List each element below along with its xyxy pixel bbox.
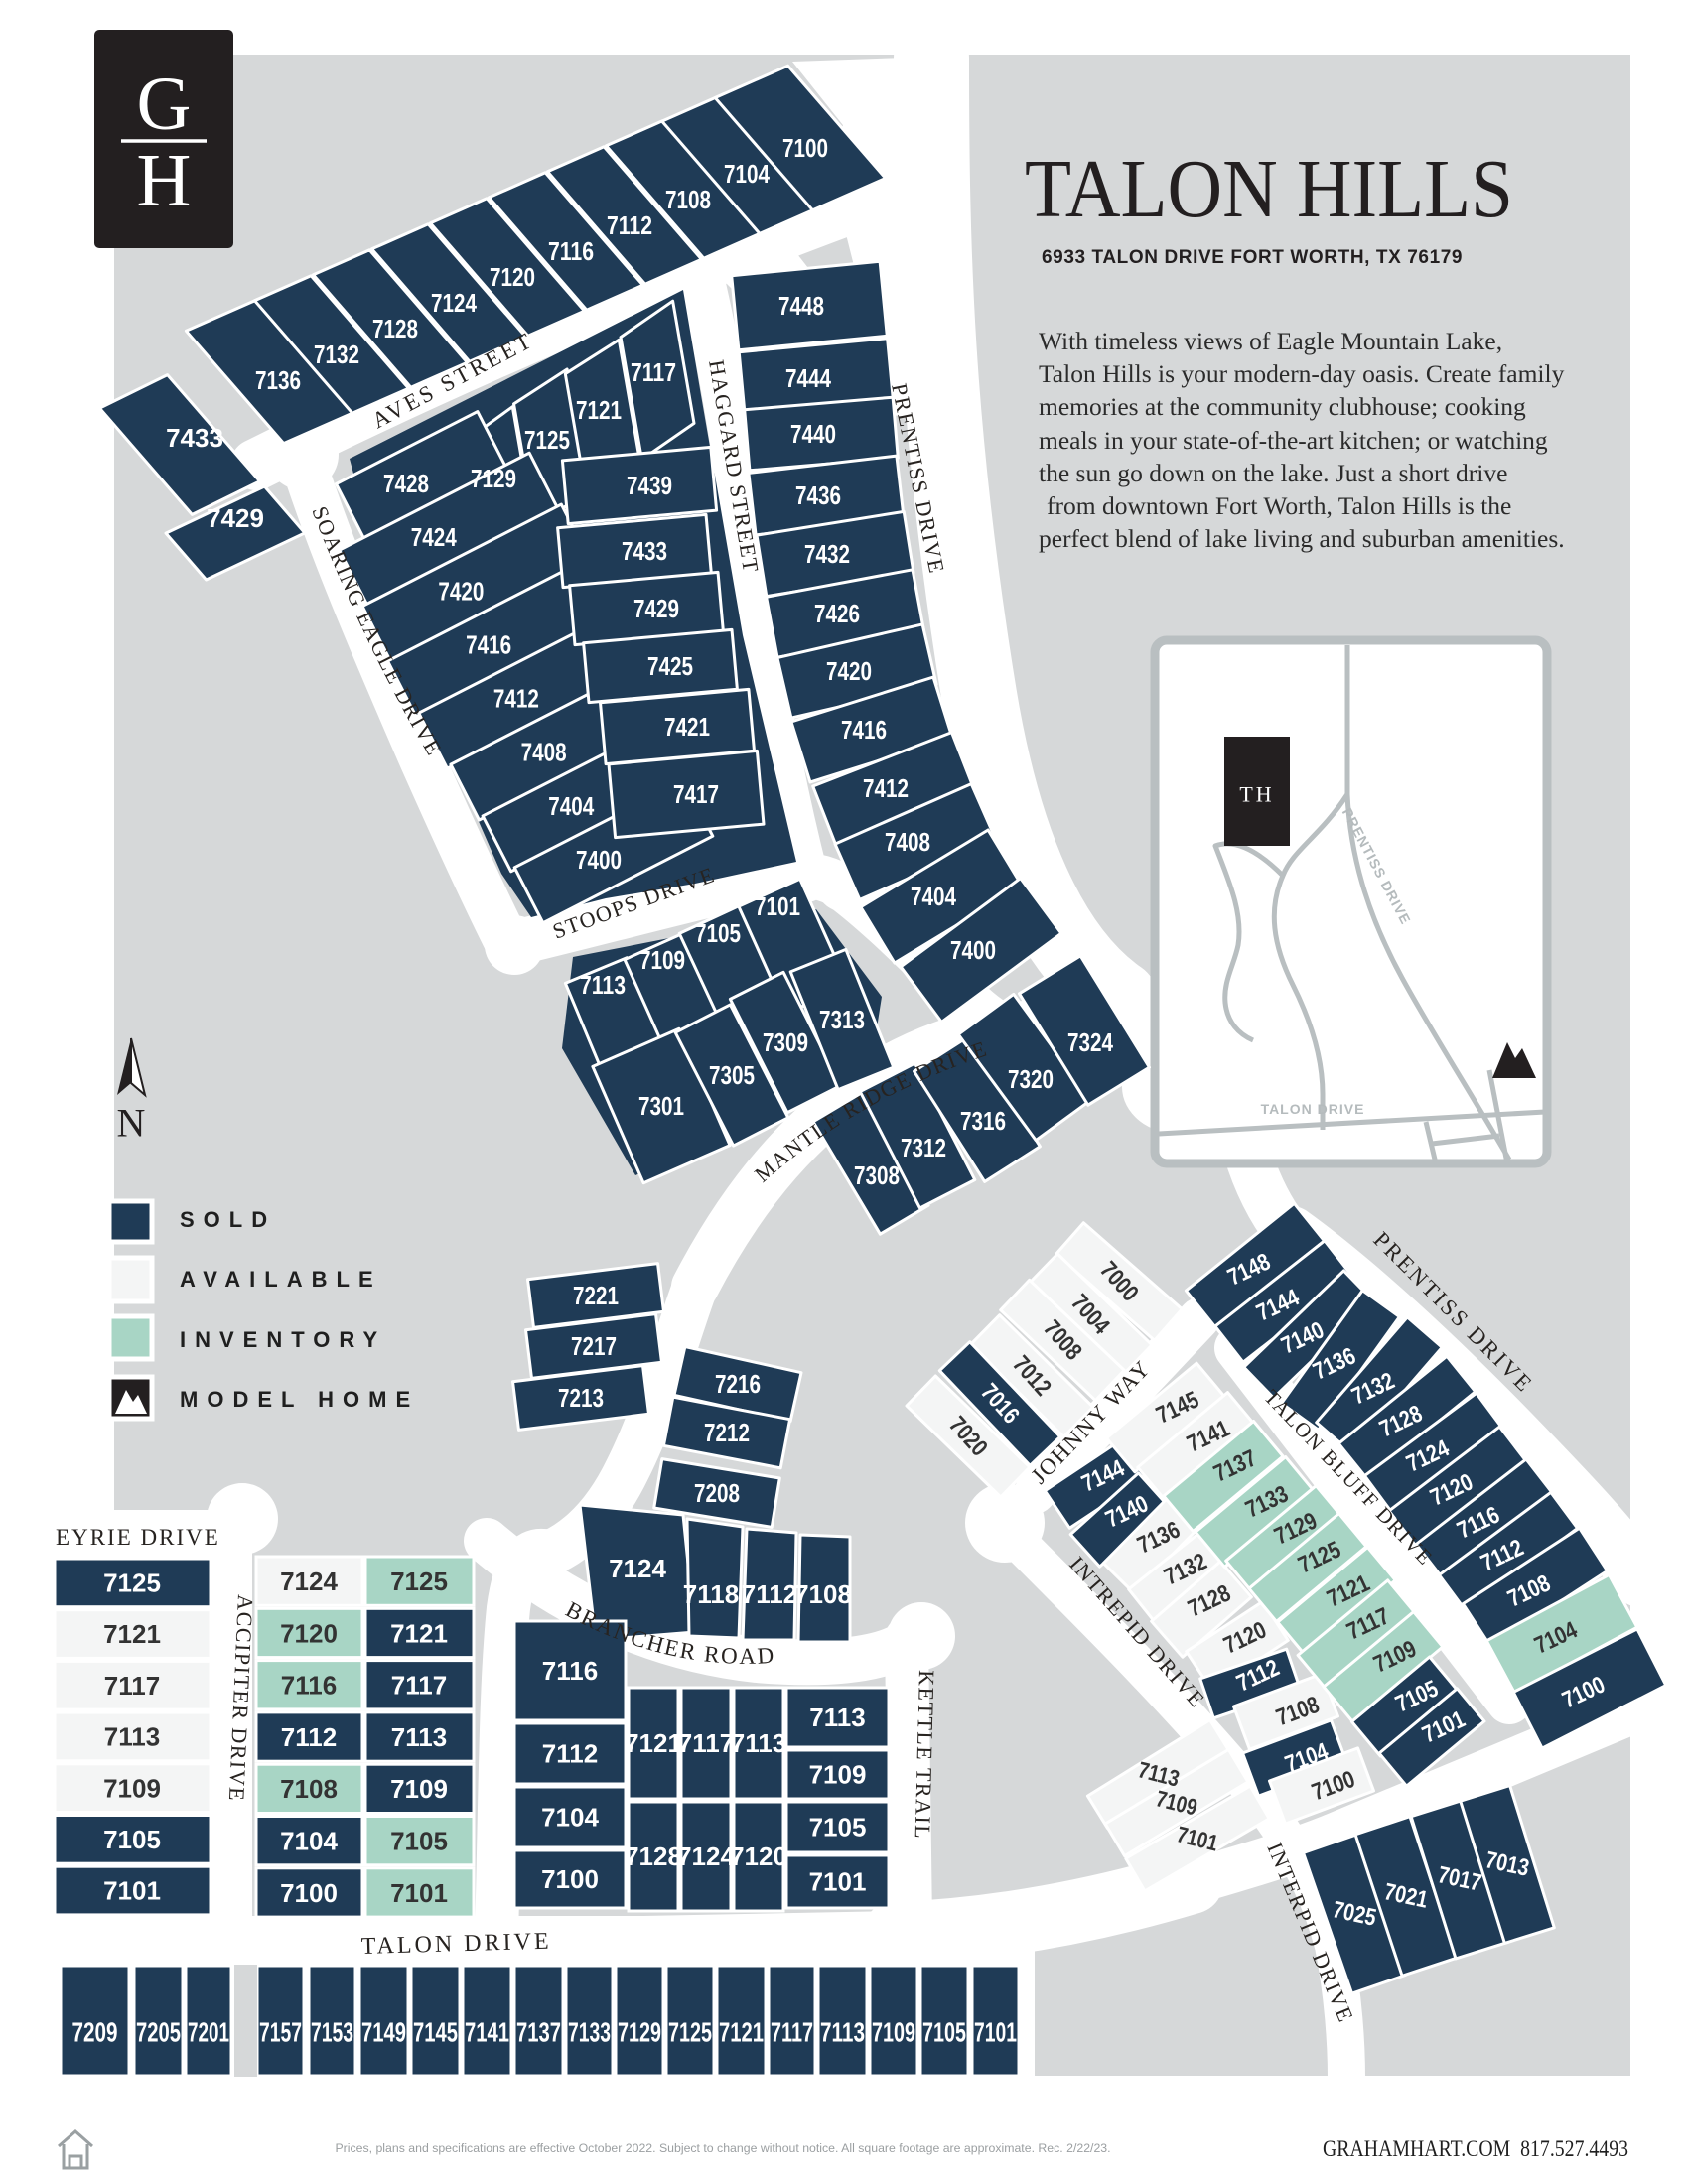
svg-text:7429: 7429 [633,594,679,623]
svg-text:7420: 7420 [826,656,872,686]
svg-text:7432: 7432 [804,539,850,569]
svg-text:from downtown Fort Worth, Talo: from downtown Fort Worth, Talon Hills is… [1047,491,1511,520]
svg-text:7205: 7205 [136,2017,181,2048]
svg-text:7209: 7209 [72,2017,118,2048]
svg-text:7201: 7201 [188,2017,229,2048]
svg-text:7120: 7120 [280,1618,338,1648]
svg-text:AVAILABLE: AVAILABLE [180,1267,382,1292]
svg-text:7213: 7213 [558,1383,604,1413]
svg-text:7116: 7116 [548,236,594,266]
svg-text:7121: 7121 [103,1619,161,1649]
svg-text:7125: 7125 [103,1569,161,1598]
svg-text:7212: 7212 [704,1418,750,1447]
svg-text:7424: 7424 [411,522,457,552]
svg-text:7121: 7121 [390,1618,448,1648]
svg-text:7439: 7439 [627,471,672,500]
svg-text:7444: 7444 [785,363,831,393]
svg-text:7421: 7421 [664,712,710,742]
svg-text:KETTLE TRAIL: KETTLE TRAIL [911,1670,939,1841]
svg-text:7124: 7124 [431,288,477,318]
svg-text:MODEL HOME: MODEL HOME [180,1387,419,1412]
svg-text:7429: 7429 [207,503,264,533]
svg-text:7448: 7448 [778,291,824,321]
svg-text:meals in your state-of-the-art: meals in your state-of-the-art kitchen; … [1039,426,1548,455]
svg-text:7125: 7125 [668,2017,712,2048]
svg-text:7149: 7149 [361,2017,406,2048]
svg-text:7305: 7305 [709,1060,755,1090]
svg-text:7121: 7121 [576,395,622,425]
svg-text:7117: 7117 [391,1671,447,1701]
svg-text:7408: 7408 [885,827,930,857]
svg-text:TALON HILLS: TALON HILLS [1025,143,1513,235]
svg-text:7117: 7117 [771,2017,813,2048]
svg-text:7112: 7112 [281,1722,337,1752]
svg-text:7426: 7426 [814,599,860,628]
svg-text:TH: TH [1239,782,1274,807]
svg-text:7412: 7412 [493,684,539,714]
svg-text:7113: 7113 [580,970,626,1000]
svg-text:N: N [117,1101,146,1146]
svg-text:7404: 7404 [548,791,594,821]
svg-text:7128: 7128 [625,1842,682,1871]
svg-text:7109: 7109 [639,945,685,975]
svg-text:7104: 7104 [724,159,770,189]
svg-text:7112: 7112 [607,210,652,240]
svg-text:7129: 7129 [471,464,516,493]
svg-text:7141: 7141 [465,2017,509,2048]
svg-text:7109: 7109 [872,2017,915,2048]
svg-text:7137: 7137 [516,2017,561,2048]
svg-text:7416: 7416 [841,715,887,745]
svg-text:7124: 7124 [677,1842,735,1871]
svg-text:7133: 7133 [568,2017,611,2048]
svg-text:GRAHAMHART.COM 817.527.4493: GRAHAMHART.COM 817.527.4493 [1323,2136,1628,2161]
svg-text:EYRIE DRIVE: EYRIE DRIVE [56,1525,220,1550]
svg-text:7120: 7120 [730,1842,787,1871]
svg-text:7400: 7400 [576,845,622,875]
svg-text:memories at the community club: memories at the community clubhouse; coo… [1039,392,1526,421]
svg-text:7157: 7157 [259,2017,302,2048]
svg-text:7101: 7101 [103,1876,161,1906]
svg-text:7118: 7118 [683,1579,739,1609]
svg-text:6933 TALON DRIVE FORT WORTH, T: 6933 TALON DRIVE FORT WORTH, TX 76179 [1042,247,1463,268]
svg-text:7404: 7404 [911,882,956,911]
svg-text:7308: 7308 [854,1160,900,1190]
svg-text:7100: 7100 [541,1864,599,1894]
svg-text:7105: 7105 [103,1825,161,1854]
svg-text:7436: 7436 [795,480,841,510]
svg-text:7440: 7440 [790,419,836,449]
svg-text:7208: 7208 [694,1478,740,1508]
svg-text:TALON DRIVE: TALON DRIVE [360,1929,551,1960]
svg-text:7117: 7117 [631,357,676,387]
svg-text:7145: 7145 [413,2017,458,2048]
svg-text:7109: 7109 [809,1760,867,1790]
svg-text:7113: 7113 [104,1722,160,1752]
svg-text:7113: 7113 [391,1722,447,1752]
svg-text:7100: 7100 [280,1878,338,1908]
svg-text:H: H [137,139,192,222]
svg-text:7101: 7101 [390,1878,448,1908]
svg-text:7153: 7153 [311,2017,353,2048]
svg-text:7121: 7121 [719,2017,764,2048]
svg-text:7117: 7117 [104,1671,160,1701]
svg-text:7433: 7433 [622,536,667,566]
svg-text:7312: 7312 [901,1133,946,1162]
svg-text:the sun go down on the lake. J: the sun go down on the lake. Just a shor… [1039,459,1507,487]
svg-text:7301: 7301 [638,1091,684,1121]
svg-text:7121: 7121 [625,1728,682,1758]
svg-text:7101: 7101 [809,1867,867,1897]
svg-text:7125: 7125 [390,1567,448,1596]
svg-text:7104: 7104 [541,1803,599,1833]
svg-text:7136: 7136 [255,365,301,395]
svg-text:7313: 7313 [819,1005,865,1034]
svg-text:G: G [137,63,192,146]
svg-text:7112: 7112 [742,1579,797,1609]
svg-text:7309: 7309 [763,1027,808,1057]
svg-text:7124: 7124 [280,1567,338,1596]
svg-text:7417: 7417 [673,779,719,809]
svg-text:7217: 7217 [571,1331,617,1361]
svg-text:SOLD: SOLD [180,1207,276,1232]
svg-text:7109: 7109 [390,1774,448,1804]
svg-text:7420: 7420 [438,576,484,606]
svg-text:7428: 7428 [383,469,429,498]
svg-text:7105: 7105 [922,2017,966,2048]
svg-text:INVENTORY: INVENTORY [180,1327,386,1352]
svg-text:7425: 7425 [647,651,693,681]
svg-text:7108: 7108 [280,1774,338,1804]
svg-text:7113: 7113 [731,1728,786,1758]
svg-text:7104: 7104 [280,1827,338,1856]
svg-text:7128: 7128 [372,314,418,343]
svg-text:7109: 7109 [103,1773,161,1803]
svg-text:7116: 7116 [542,1656,598,1686]
svg-text:7116: 7116 [281,1671,337,1701]
svg-text:7132: 7132 [314,340,359,369]
svg-text:7316: 7316 [960,1106,1006,1136]
svg-text:7125: 7125 [524,425,570,455]
svg-text:7416: 7416 [466,629,511,659]
svg-text:7216: 7216 [715,1369,761,1399]
svg-text:7324: 7324 [1067,1027,1113,1057]
svg-text:TALON DRIVE: TALON DRIVE [1261,1101,1365,1117]
svg-text:7100: 7100 [782,133,828,163]
svg-text:7408: 7408 [521,738,567,767]
svg-text:7120: 7120 [490,262,535,292]
svg-text:7101: 7101 [974,2017,1017,2048]
svg-text:With timeless views of Eagle M: With timeless views of Eagle Mountain La… [1039,327,1502,355]
svg-text:7117: 7117 [678,1728,734,1758]
svg-text:7112: 7112 [542,1739,598,1769]
svg-text:perfect blend of lake living a: perfect blend of lake living and suburba… [1039,524,1565,553]
svg-text:7101: 7101 [755,891,800,921]
svg-text:Prices, plans and specificatio: Prices, plans and specifications are eff… [335,2141,1110,2155]
svg-text:Talon Hills is your modern-day: Talon Hills is your modern-day oasis. Cr… [1039,359,1565,388]
svg-text:7105: 7105 [695,918,741,948]
svg-text:7400: 7400 [950,935,996,965]
svg-text:7105: 7105 [809,1813,867,1843]
svg-text:7124: 7124 [609,1554,666,1583]
svg-text:7433: 7433 [166,423,223,453]
svg-text:7129: 7129 [618,2017,661,2048]
svg-text:7221: 7221 [573,1281,619,1310]
svg-text:7108: 7108 [794,1579,852,1609]
svg-text:7108: 7108 [665,185,711,214]
svg-text:7412: 7412 [863,773,909,803]
svg-text:7320: 7320 [1008,1064,1054,1094]
svg-text:7113: 7113 [809,1703,865,1732]
svg-text:7113: 7113 [820,2017,865,2048]
svg-text:7105: 7105 [390,1827,448,1856]
